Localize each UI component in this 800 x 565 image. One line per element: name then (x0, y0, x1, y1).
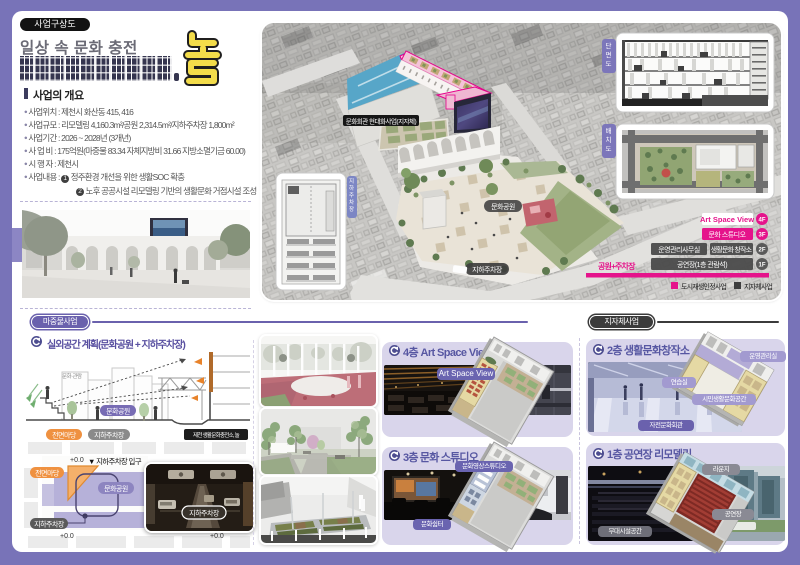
svg-text:배: 배 (606, 126, 612, 135)
svg-text:2F: 2F (758, 248, 765, 254)
svg-text:하: 하 (349, 184, 354, 192)
svg-text:문화공원: 문화공원 (104, 484, 128, 493)
svg-text:치: 치 (606, 135, 612, 144)
svg-text:문화 스튜디오: 문화 스튜디오 (708, 230, 746, 239)
svg-text:전면마당: 전면마당 (52, 431, 77, 440)
svg-text:면: 면 (606, 50, 612, 59)
svg-text:3F: 3F (758, 233, 765, 239)
svg-text:문화·관람: 문화·관람 (62, 372, 82, 380)
svg-text:단: 단 (606, 41, 612, 50)
svg-text:+0.0: +0.0 (210, 533, 224, 540)
svg-text:공원+주차장: 공원+주차장 (598, 261, 636, 271)
svg-text:도: 도 (606, 60, 612, 68)
svg-text:차: 차 (349, 198, 354, 206)
svg-text:+0.0: +0.0 (60, 533, 74, 540)
svg-text:지: 지 (349, 177, 354, 185)
svg-text:지하주차장: 지하주차장 (189, 509, 220, 518)
svg-text:생활문화 창작소: 생활문화 창작소 (711, 245, 753, 254)
svg-text:지자체사업: 지자체사업 (744, 282, 773, 291)
svg-text:운영관리사무실: 운영관리사무실 (658, 245, 700, 254)
svg-text:▼ 지하주차장 입구: ▼ 지하주차장 입구 (88, 456, 142, 466)
svg-text:Art Space View: Art Space View (700, 215, 754, 224)
svg-text:도: 도 (606, 145, 612, 153)
svg-text:+0.0: +0.0 (70, 457, 84, 464)
svg-text:4F: 4F (758, 218, 765, 224)
svg-text:제천 생활문화충전소, 놀: 제천 생활문화충전소, 놀 (193, 431, 240, 439)
svg-text:지하주차장: 지하주차장 (34, 520, 65, 529)
svg-text:도시재생인정사업: 도시재생인정사업 (681, 282, 726, 291)
svg-text:지하주차장: 지하주차장 (94, 431, 125, 440)
svg-text:1F: 1F (758, 263, 765, 269)
svg-text:문화공원: 문화공원 (106, 407, 130, 416)
svg-text:주: 주 (349, 192, 354, 199)
svg-text:전면마당: 전면마당 (35, 469, 60, 478)
svg-text:장: 장 (349, 206, 354, 213)
svg-text:공연장(1층 관람석): 공연장(1층 관람석) (677, 260, 727, 269)
